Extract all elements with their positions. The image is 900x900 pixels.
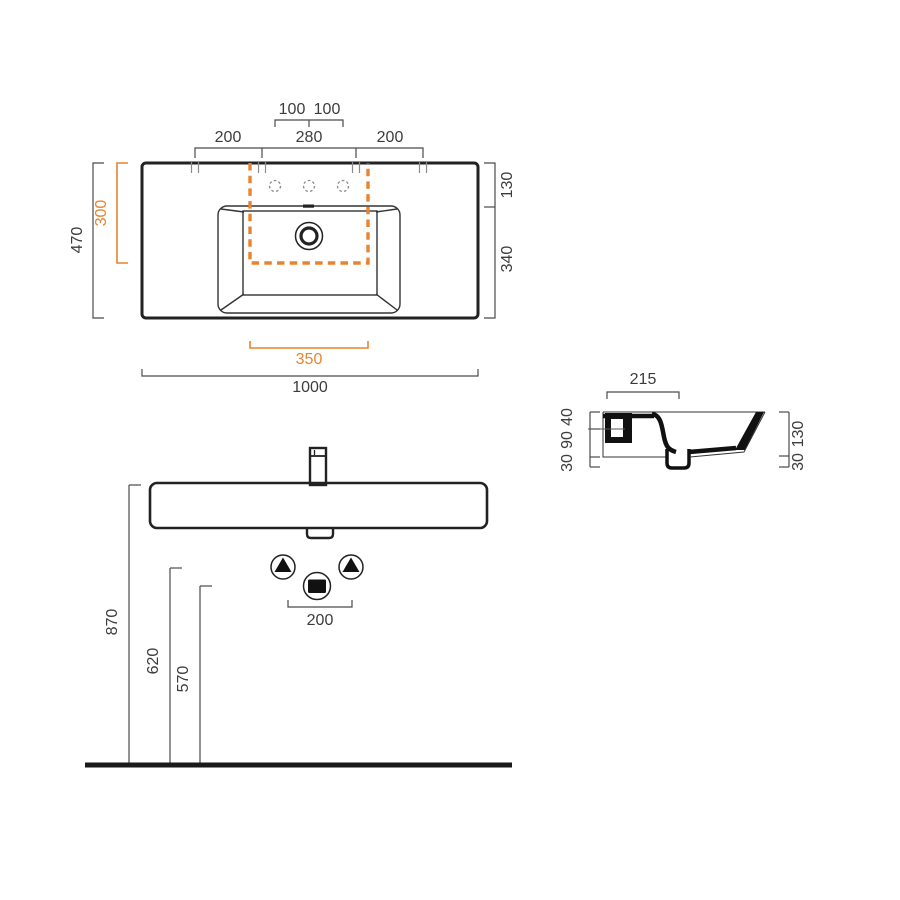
tap-hole-center <box>304 181 315 192</box>
triangle-icon <box>275 558 292 573</box>
dim-label-90: 90 <box>559 431 576 449</box>
triangle-icon <box>343 558 360 573</box>
front-view: 200 870 620 570 <box>85 448 512 765</box>
dim-label-100-right: 100 <box>314 101 341 118</box>
front-rim-wedge <box>735 412 764 450</box>
dim-label-570: 570 <box>175 666 192 693</box>
dim-ledge-depth: 215 <box>607 371 679 399</box>
dim-label-300: 300 <box>93 200 110 227</box>
front-drain-stub <box>307 528 333 538</box>
front-faucet <box>310 448 326 485</box>
dim-label-1000: 1000 <box>292 379 328 396</box>
dim-cutout-depth: 300 <box>93 163 128 263</box>
supply-symbol-left <box>271 555 295 579</box>
drawing-canvas: 100 100 200 280 200 470 300 130 340 <box>0 0 900 900</box>
plan-view: 100 100 200 280 200 470 300 130 340 <box>69 101 516 396</box>
section-profile <box>588 412 765 468</box>
dim-section-left: 40 90 30 <box>559 408 600 472</box>
dim-label-40: 40 <box>559 408 576 426</box>
dim-cutout-width: 350 <box>250 341 368 368</box>
dim-label-130-section: 130 <box>790 421 807 448</box>
cutout-dashed-outline <box>250 163 368 263</box>
dim-label-100-left: 100 <box>279 101 306 118</box>
dim-total-width: 1000 <box>142 369 478 396</box>
dim-supply-spacing: 200 <box>288 600 352 629</box>
dim-label-215: 215 <box>630 371 657 388</box>
dim-total-depth: 470 <box>69 163 104 318</box>
section-view: 215 40 90 30 <box>559 371 807 472</box>
tap-hole-left <box>270 181 281 192</box>
dim-rim-height: 870 <box>104 485 141 765</box>
tap-hole-right <box>338 181 349 192</box>
dim-hole-pitch: 100 100 <box>275 101 343 127</box>
dim-label-200-front: 200 <box>307 612 334 629</box>
dim-label-870: 870 <box>104 609 121 636</box>
dim-fix-spans: 200 280 200 <box>195 129 423 158</box>
dim-right-depths: 130 340 <box>484 163 516 318</box>
supply-symbol-right <box>339 555 363 579</box>
dim-waste-height: 570 <box>175 586 212 765</box>
overflow-slot <box>303 205 314 208</box>
dim-label-470: 470 <box>69 227 86 254</box>
front-basin-body <box>150 483 487 528</box>
dim-label-200-right: 200 <box>377 129 404 146</box>
square-icon <box>308 580 326 594</box>
technical-drawing: 100 100 200 280 200 470 300 130 340 <box>0 0 900 900</box>
dim-label-620: 620 <box>145 648 162 675</box>
plan-tap-holes <box>270 181 349 192</box>
dim-label-30-left: 30 <box>559 454 576 472</box>
drain-hole <box>301 228 317 244</box>
dim-label-350: 350 <box>296 351 323 368</box>
dim-label-340: 340 <box>499 246 516 273</box>
waste-symbol <box>304 573 331 600</box>
dim-section-right: 130 30 <box>779 412 807 471</box>
dim-label-200-left: 200 <box>215 129 242 146</box>
dim-label-30-right: 30 <box>790 453 807 471</box>
dim-label-280: 280 <box>296 129 323 146</box>
dim-label-130-plan: 130 <box>499 172 516 199</box>
